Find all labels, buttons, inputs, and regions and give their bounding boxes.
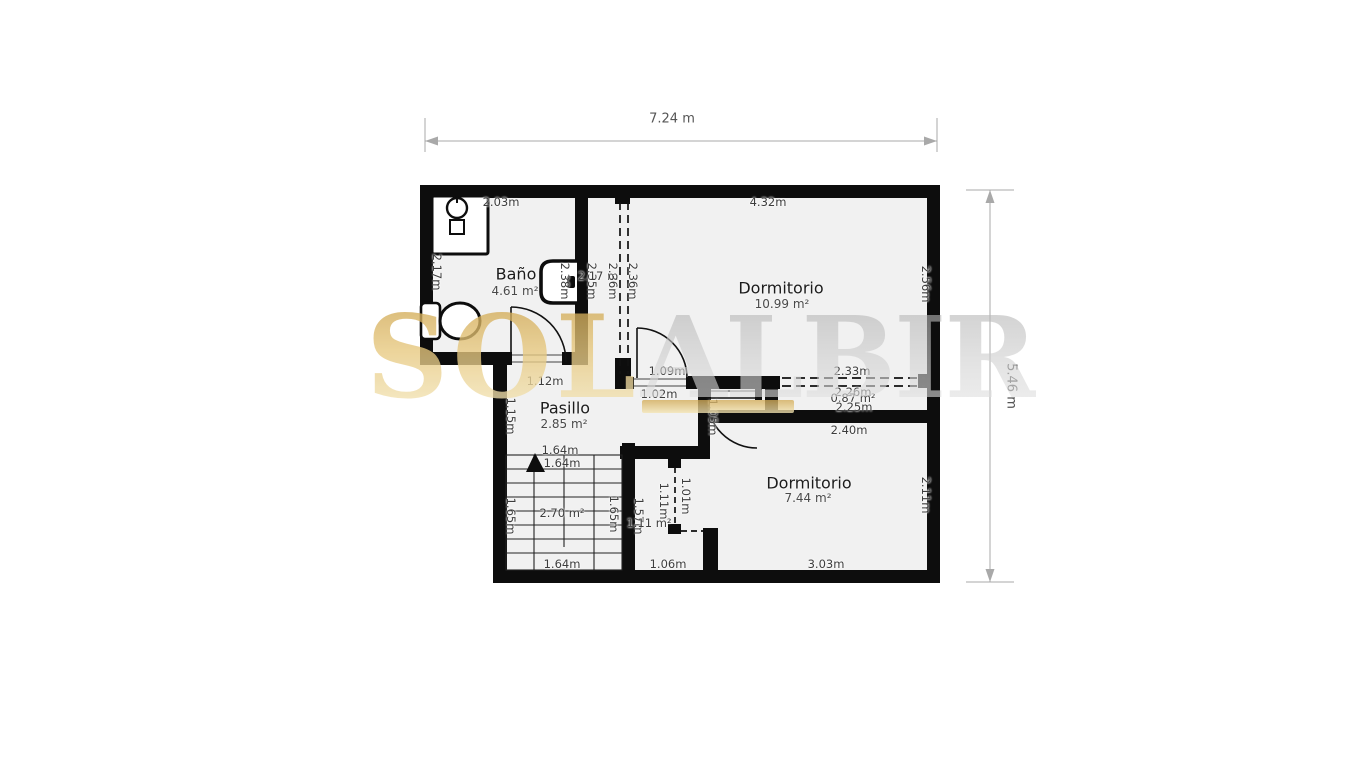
room-name-bano: Baño — [496, 265, 537, 284]
room-area-bano: 4.61 m² — [491, 284, 538, 298]
sink-icon — [541, 261, 577, 303]
room-name-dormitorio-1: Dormitorio — [738, 279, 823, 298]
room-area-dormitorio-2: 7.44 m² — [784, 491, 831, 505]
room-area-pasillo: 2.85 m² — [540, 417, 587, 431]
overall-width-label: 7.24 m — [649, 112, 695, 127]
floorplan-canvas: 7.24 m 5.46 m Baño 4.61 m² Dormitorio 10… — [0, 0, 1365, 768]
shower-icon — [432, 196, 488, 254]
room-name-dormitorio-2: Dormitorio — [766, 474, 851, 493]
toilet-icon — [421, 303, 480, 339]
overall-height-label: 5.46 m — [1004, 363, 1019, 409]
floor-fill — [433, 198, 927, 570]
room-area-dormitorio-1: 10.99 m² — [755, 297, 810, 311]
room-name-pasillo: Pasillo — [540, 399, 590, 418]
